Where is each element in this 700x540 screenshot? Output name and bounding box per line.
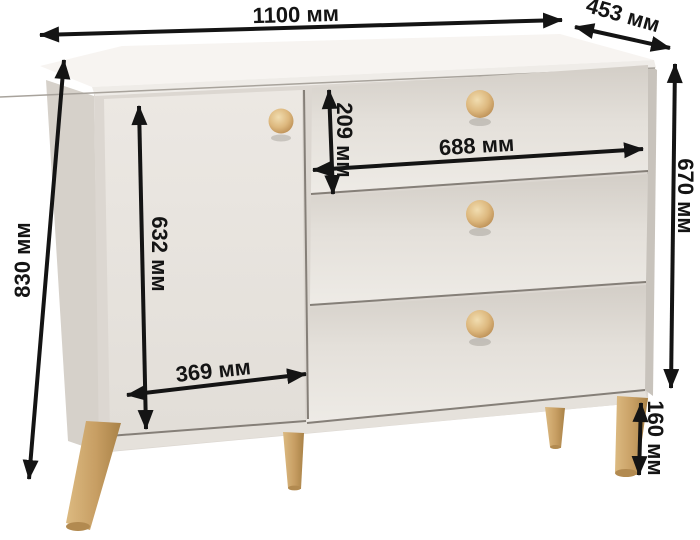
dim-overall-width-label: 1100 мм <box>252 1 339 28</box>
leg-front-right-foot <box>615 469 637 477</box>
dim-drawers-width-label: 688 мм <box>438 131 515 161</box>
leg-back-left-foot <box>288 486 301 491</box>
dim-door-height-label: 632 мм <box>147 216 172 291</box>
leg-back-right-foot <box>550 445 561 449</box>
drawer-bottom-knob <box>466 310 494 338</box>
dim-overall-height-label: 830 мм <box>10 222 35 297</box>
drawer-top-knob <box>466 90 494 118</box>
knob-shadow-3 <box>469 338 491 346</box>
door-knob-shadow <box>271 135 291 142</box>
drawer-middle-knob <box>466 200 494 228</box>
dim-depth: 453 мм <box>575 0 670 48</box>
knob-shadow-2 <box>469 228 491 236</box>
dresser-left-side-panel <box>46 80 100 452</box>
door-knob <box>269 109 294 134</box>
dresser-diagram-canvas: 1100 мм 453 мм 830 мм 670 мм 209 мм 688 … <box>0 0 700 540</box>
product-dimensions-diagram: 1100 мм 453 мм 830 мм 670 мм 209 мм 688 … <box>0 0 700 540</box>
knob-shadow-1 <box>469 118 491 126</box>
dim-legs-height: 160 мм <box>639 400 668 475</box>
dim-legs-height-label: 160 мм <box>643 400 668 475</box>
leg-back-right <box>545 407 565 448</box>
dim-body-height-label: 670 мм <box>673 158 698 233</box>
dim-overall-width: 1100 мм <box>40 1 562 35</box>
leg-front-left-foot <box>66 522 90 531</box>
dim-legs-height-arrow <box>639 403 641 475</box>
dim-body-height: 670 мм <box>671 64 698 388</box>
leg-back-left <box>283 432 304 489</box>
